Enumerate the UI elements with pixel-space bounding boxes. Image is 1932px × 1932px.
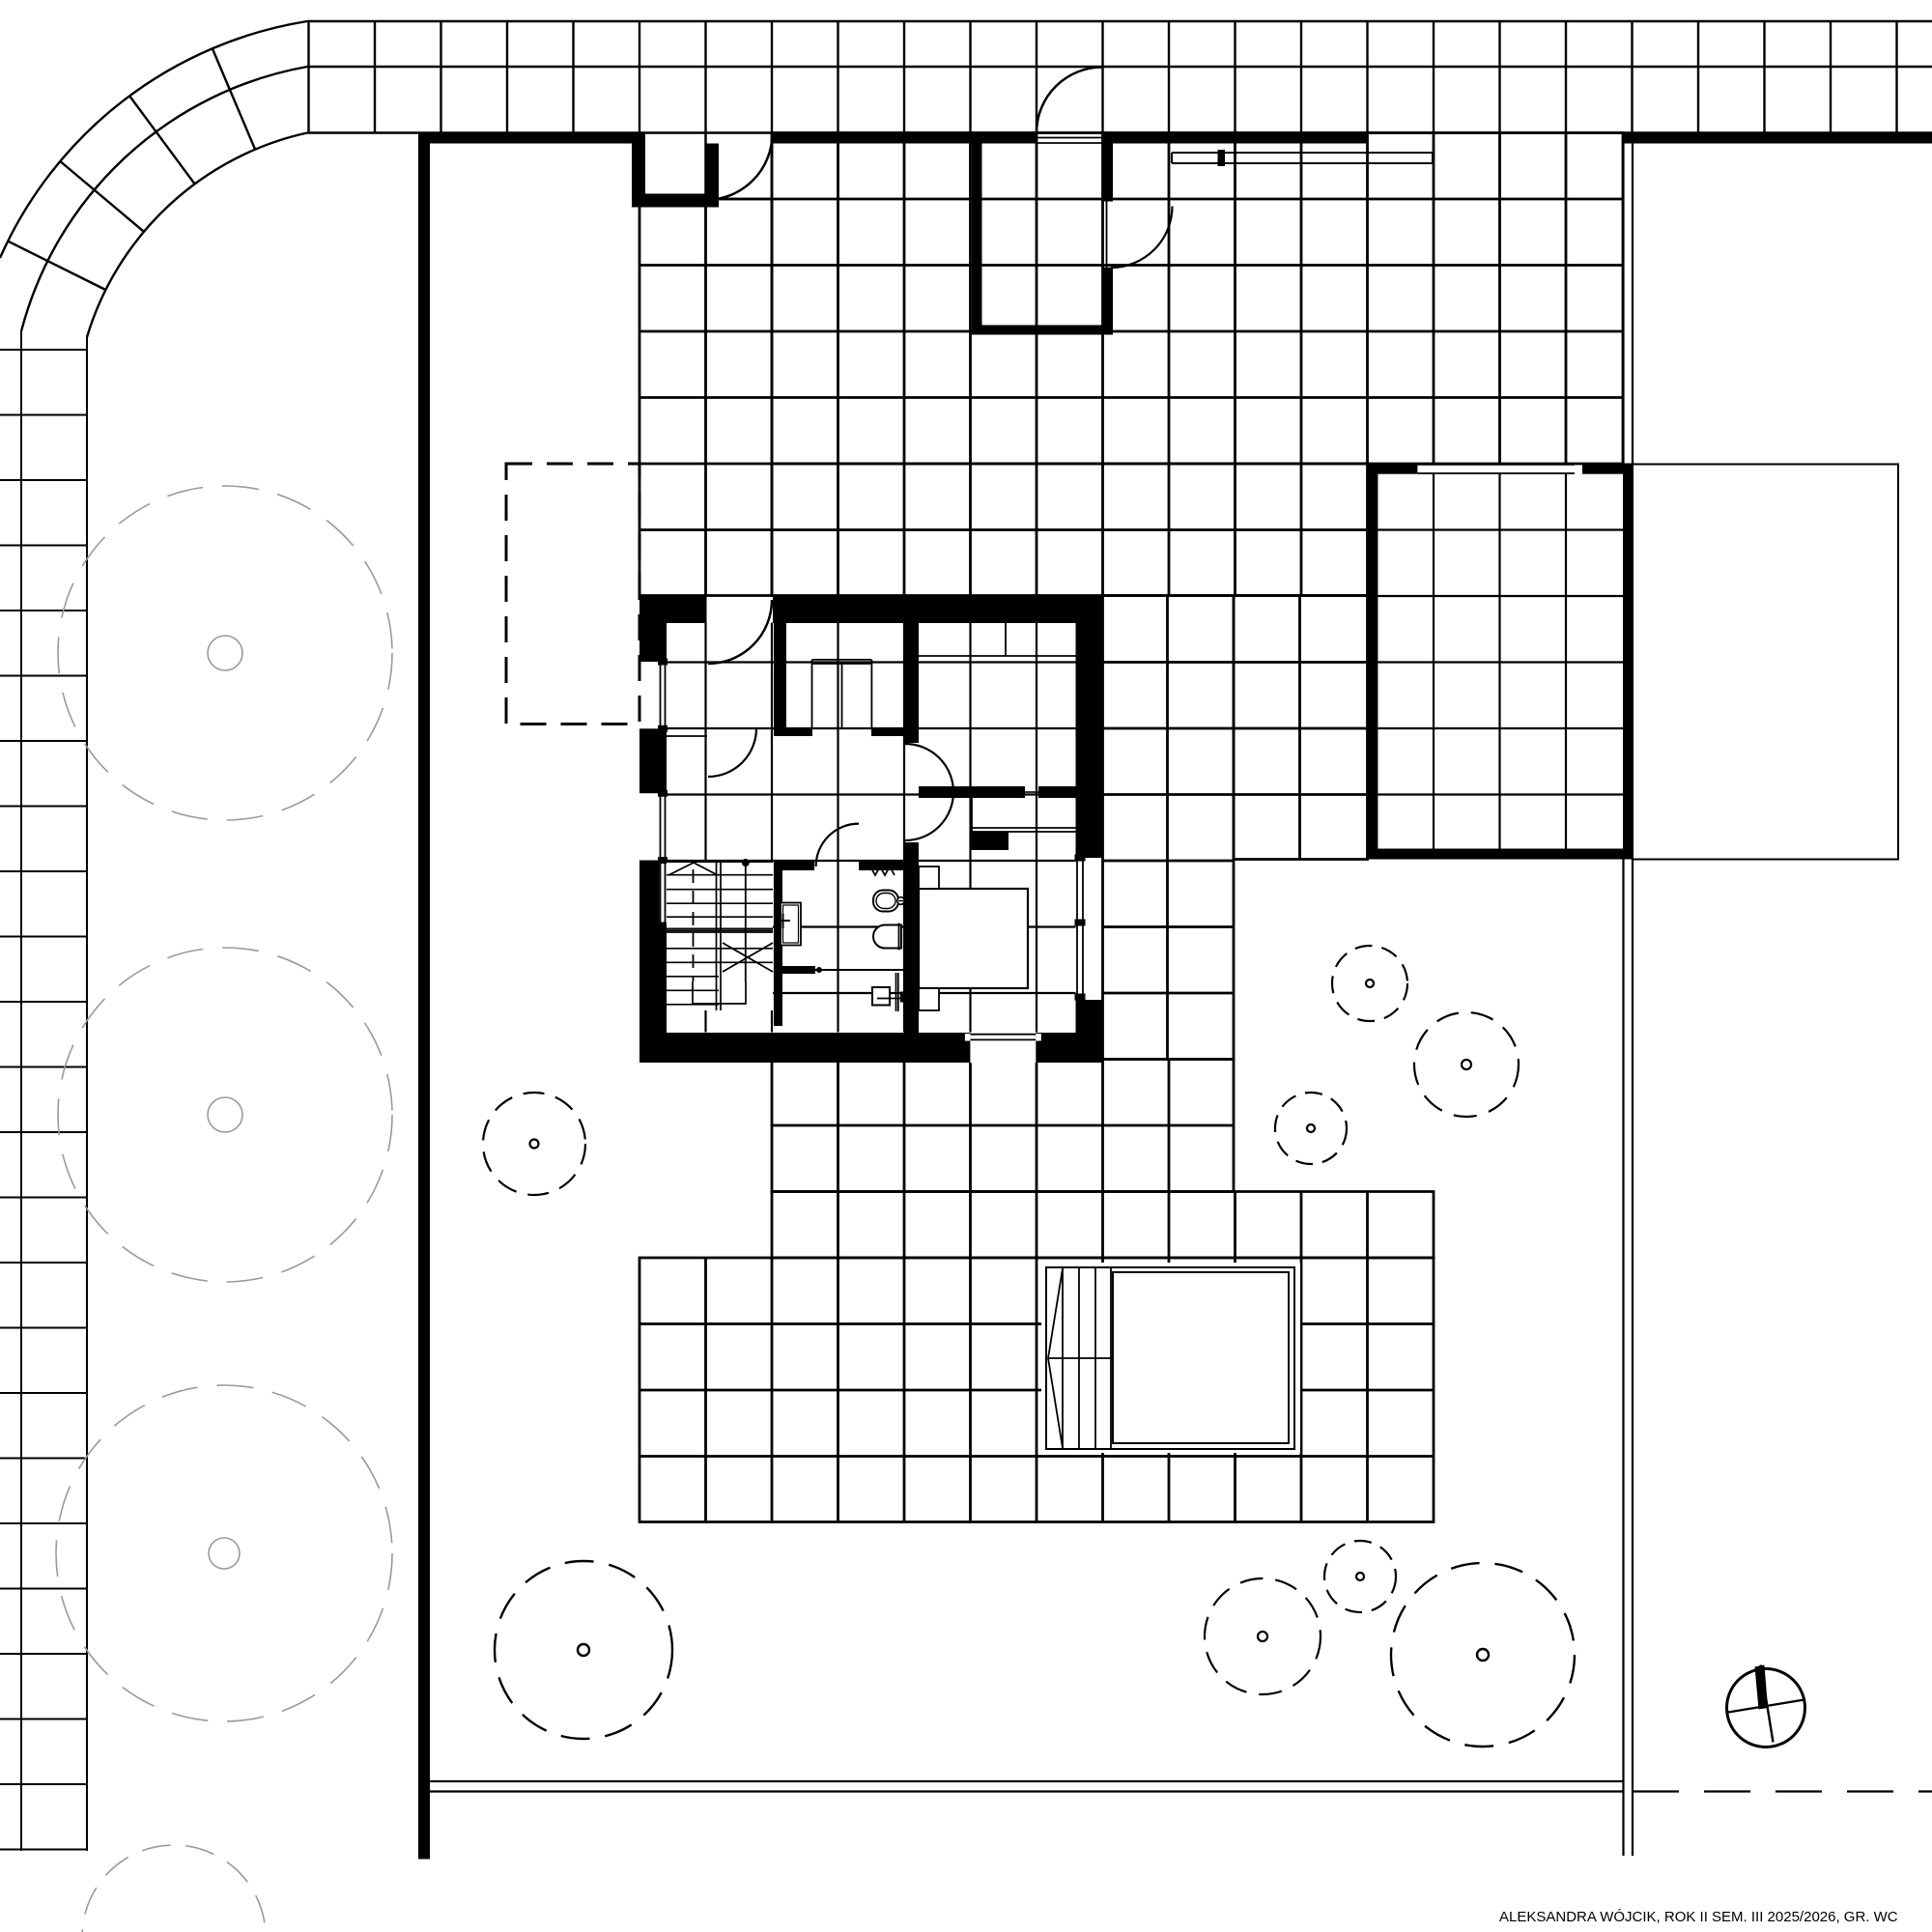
- svg-text:ALEKSANDRA WÓJCIK, ROK II SEM.: ALEKSANDRA WÓJCIK, ROK II SEM. III 2025/…: [1499, 1909, 1898, 1925]
